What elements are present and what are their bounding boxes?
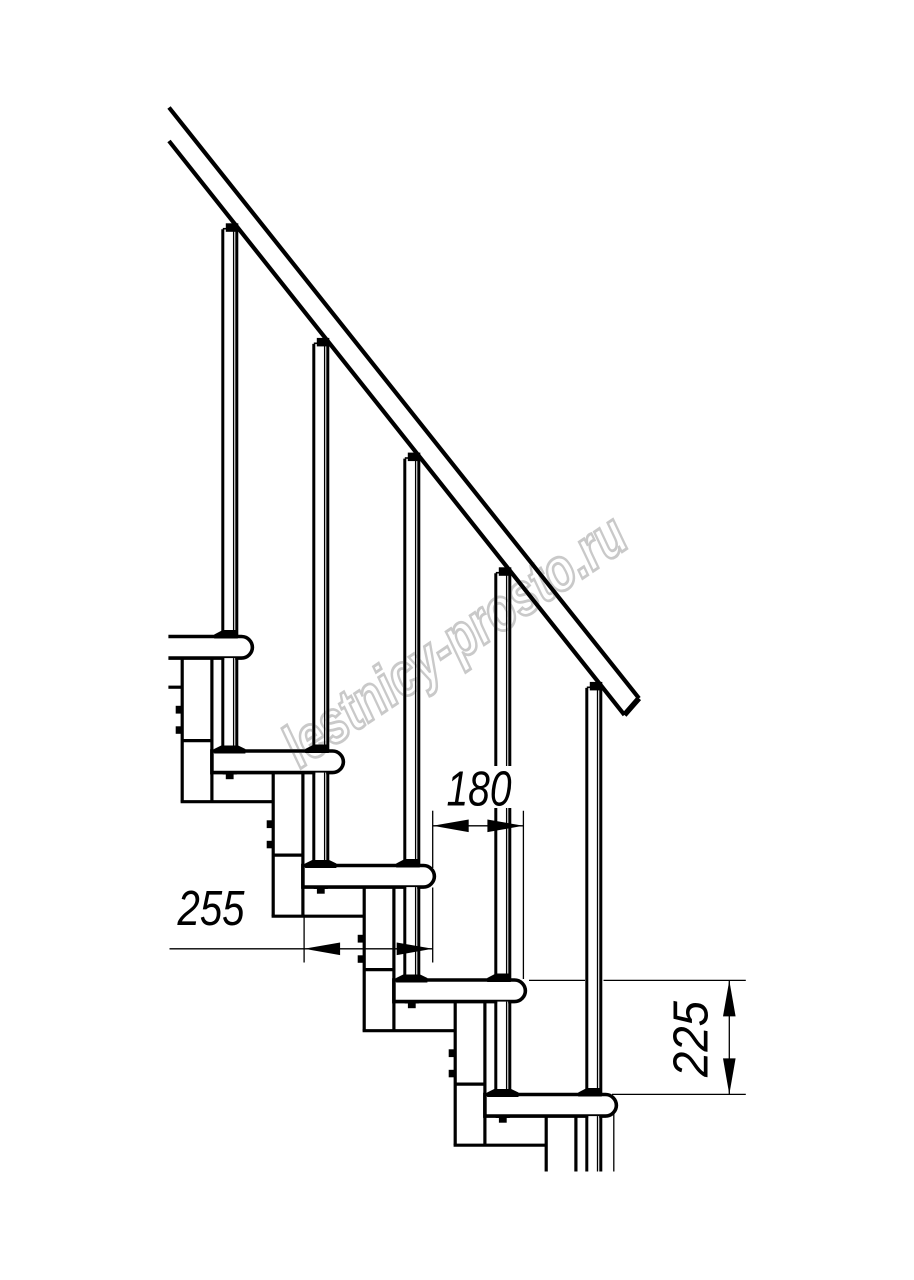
svg-text:255: 255 (177, 882, 245, 936)
svg-text:180: 180 (447, 763, 512, 817)
svg-text:225: 225 (665, 1000, 719, 1078)
